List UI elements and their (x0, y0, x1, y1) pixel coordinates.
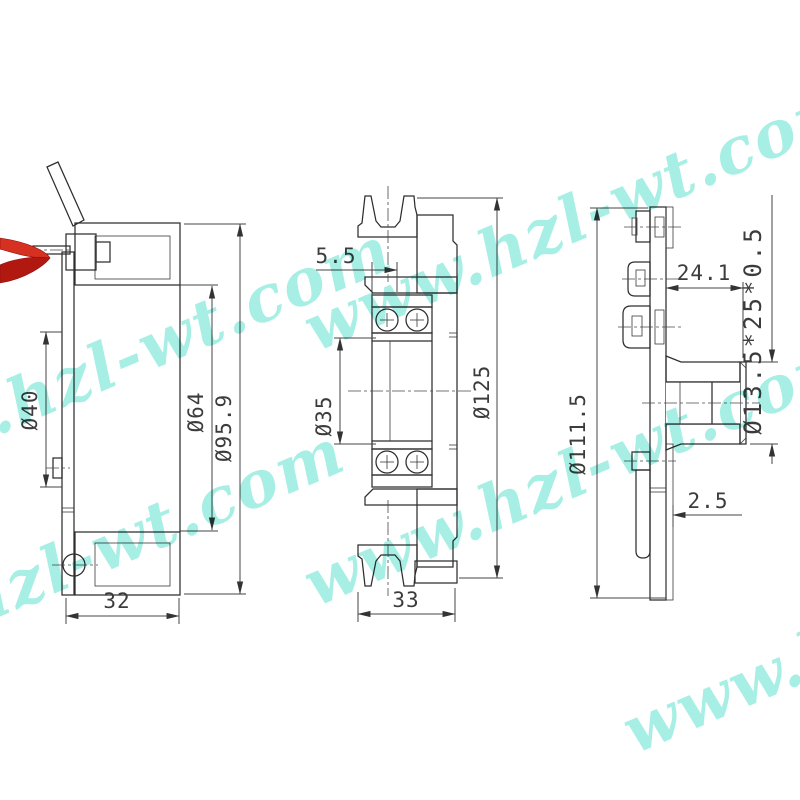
pulley-rim-bottom (358, 545, 417, 586)
plate-lining-top (666, 207, 673, 248)
dim-label-d959: Ø95.9 (212, 394, 236, 462)
coil-winding-bottom (95, 543, 170, 586)
plate-lining-bottom (666, 444, 673, 600)
housing-wall (62, 252, 74, 595)
dim-label-d125: Ø125 (470, 365, 494, 420)
dim-label-d64: Ø64 (184, 392, 208, 433)
dim-label-d1115: Ø111.5 (566, 393, 590, 475)
bearing-inner-race-top (372, 333, 432, 341)
dim-label-d35: Ø35 (312, 396, 336, 437)
connector-tip (96, 242, 110, 262)
red-ribbon-logo (0, 238, 50, 283)
dim-label-25: 2.5 (688, 489, 729, 513)
dim-label-spec: Ø13.5*25*0.5 (739, 225, 767, 434)
bearing-outer-race-top (372, 295, 432, 307)
bearing-outer-race-bottom (372, 475, 432, 487)
hub-boss-bottom-wall (666, 424, 740, 450)
left-view-coil-section: Ø40 Ø64 Ø95.9 32 (18, 162, 246, 624)
coil-block-bottom (75, 532, 180, 595)
coil-block-top (75, 223, 180, 285)
hub-boss-top-wall (666, 356, 740, 382)
dim-label-w32: 32 (103, 589, 130, 613)
engineering-drawing-page: Ø40 Ø64 Ø95.9 32 (0, 0, 800, 800)
pulley-hub-flange-top (417, 215, 457, 293)
technical-drawing-svg: Ø40 Ø64 Ø95.9 32 (0, 0, 800, 800)
mount-bracket (47, 162, 84, 226)
rivet-block (636, 211, 650, 242)
pulley-web-top (365, 277, 457, 293)
armature-plate (650, 207, 666, 600)
damper-insert (636, 270, 645, 286)
damper-insert (632, 316, 642, 336)
bearing-inner-race-bottom (372, 441, 432, 449)
pulley-hub-flange-bottom (417, 489, 457, 567)
hub-end-cap (415, 561, 457, 583)
right-view-hub-section: Ø111.5 24.1 Ø13.5*25*0.5 2.5 (566, 195, 778, 600)
dim-label-d40: Ø40 (18, 390, 42, 431)
dim-label-55: 5.5 (316, 244, 357, 268)
dim-label-w33: 33 (392, 588, 419, 612)
pulley-rim-top (358, 196, 417, 237)
pulley-web-bottom (365, 489, 457, 505)
spring-tail (636, 470, 650, 558)
middle-view-pulley-section: 5.5 Ø35 Ø125 33 (312, 186, 503, 622)
dim-label-241: 24.1 (677, 261, 732, 285)
